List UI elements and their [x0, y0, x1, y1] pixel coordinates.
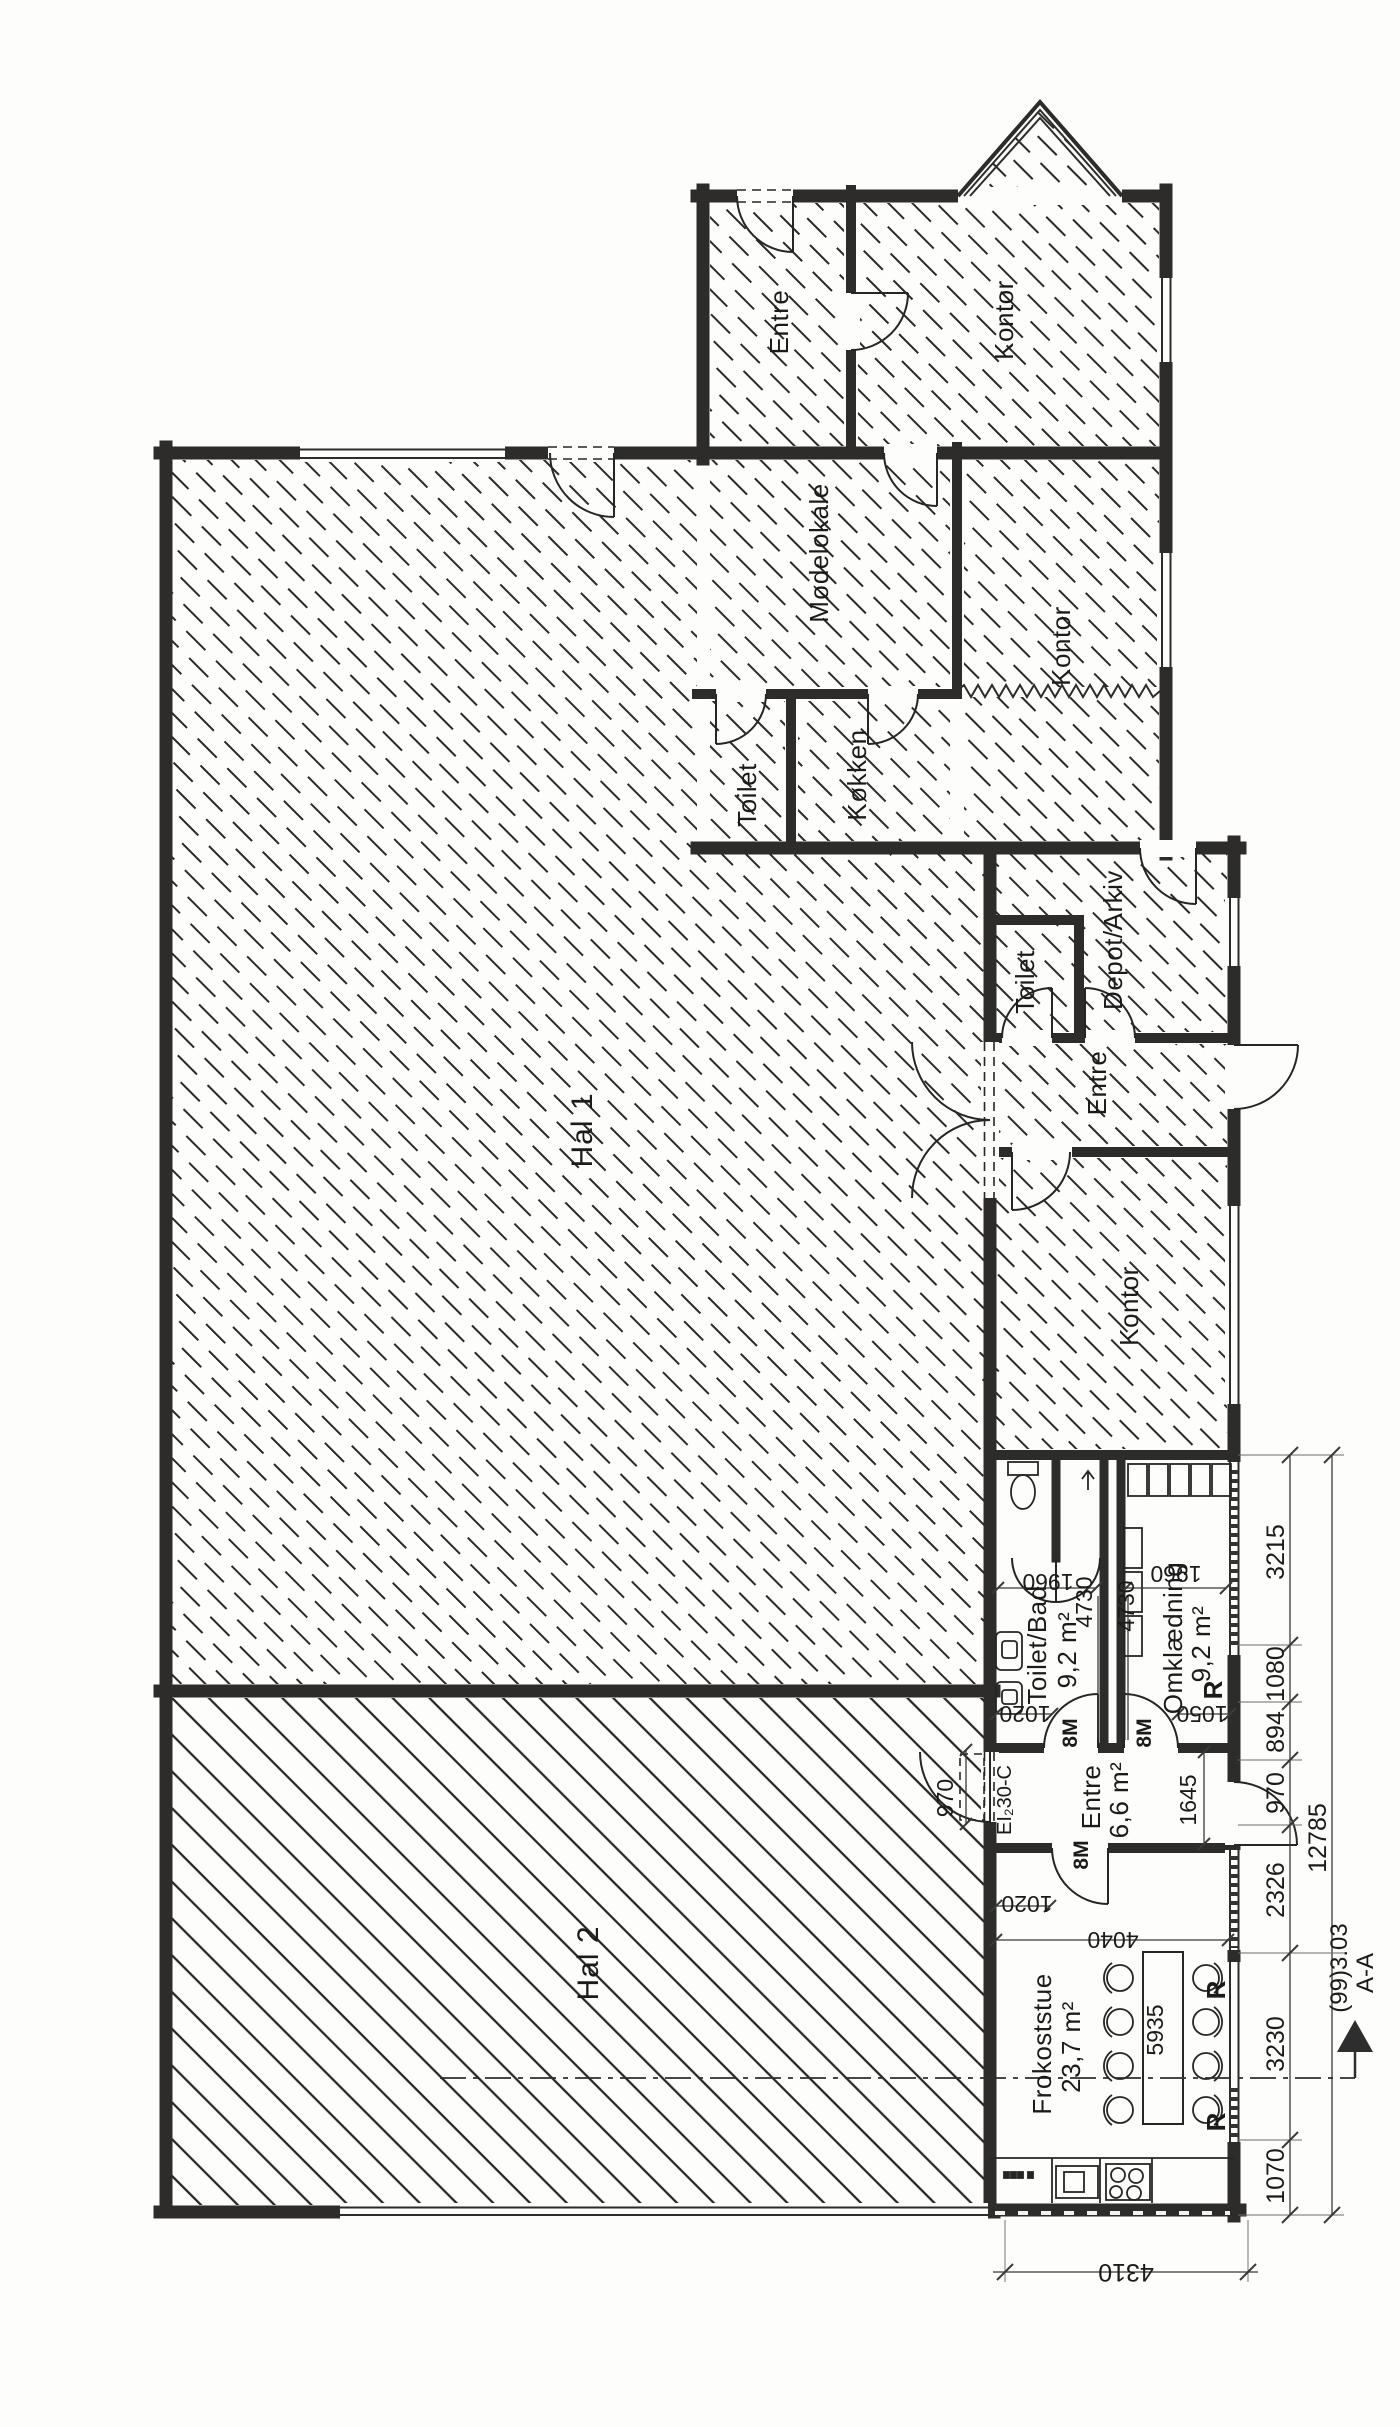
section-ref: (99)3.03 — [1326, 1923, 1353, 2012]
fire-door-rating: EI₂30-C — [994, 1765, 1016, 1835]
room-label-kontor-mid: Kontor — [1046, 606, 1076, 686]
room-label-kokken: Køkken — [842, 729, 872, 820]
room-label-entre-top: Entre — [764, 290, 794, 355]
door-tag-omkl: 8M — [1133, 1718, 1156, 1747]
dim-entre-depth: 1645 — [1175, 1774, 1201, 1825]
room-label-entre-mid: Entre — [1082, 1051, 1112, 1116]
room-area-frokoststue: 23,7 m² — [1056, 2001, 1086, 2093]
dim-hal2-door: 970 — [932, 1779, 958, 1817]
section-cut-name: A-A — [1352, 1953, 1379, 1993]
dim-chain-3215: 3215 — [1262, 1524, 1290, 1580]
dim-duct-right: 4730 — [1113, 1580, 1139, 1631]
dim-omkl-width: 1960 — [1150, 1561, 1201, 1587]
dim-omkl-door: 1050 — [1176, 1701, 1227, 1727]
room-label-entre-south: Entre — [1076, 1765, 1106, 1830]
room-area-entre-south: 6,6 m² — [1104, 1762, 1134, 1839]
radiator-mark-frokost-1: R — [1201, 1980, 1231, 1999]
door-tag-frokost: 8M — [1070, 1840, 1093, 1869]
room-label-toilet-bad: Toilet/Bad — [1022, 1585, 1052, 1704]
dim-table-length: 5935 — [1142, 2004, 1168, 2055]
radiator-mark-frokost-2: R — [1201, 2112, 1231, 2131]
dim-toiletbad-door: 1020 — [999, 1701, 1050, 1727]
dim-bottom-4310: 4310 — [1098, 2258, 1154, 2286]
dim-total-12785: 12785 — [1304, 1803, 1332, 1873]
dim-frokost-width: 4040 — [1087, 1927, 1138, 1953]
dim-chain-894: 894 — [1262, 1711, 1290, 1753]
dim-frokost-door: 1020 — [1001, 1891, 1052, 1917]
dim-chain-1080: 1080 — [1262, 1646, 1290, 1702]
room-label-hal-1: Hal 1 — [566, 1092, 599, 1167]
door-tag-toiletbad: 8M — [1059, 1718, 1082, 1747]
radiator-mark-omkl: R — [1198, 1680, 1228, 1699]
dim-duct-left: 4730 — [1071, 1576, 1097, 1627]
room-label-toilet-mid: Toilet — [1010, 950, 1040, 1014]
room-label-kontor-south: Kontor — [1114, 1266, 1144, 1346]
room-label-toilet-top: Toilet — [732, 763, 762, 827]
dim-chain-3230: 3230 — [1262, 2016, 1290, 2072]
scanned-floor-plan-page: Entre Kontor Mødelokale Kontor Toilet Kø… — [0, 0, 1400, 2427]
dim-chain-1070: 1070 — [1262, 2148, 1290, 2204]
room-label-frokoststue: Frokoststue — [1027, 1973, 1057, 2114]
room-label-depot-arkiv: Depot/Arkiv — [1098, 870, 1128, 1010]
room-label-hal-2: Hal 2 — [572, 1925, 605, 2000]
room-area-omklaedning: 9,2 m² — [1186, 1606, 1216, 1683]
dim-toiletbad-width: 1960 — [1022, 1569, 1073, 1595]
room-label-modelokale: Mødelokale — [804, 483, 834, 622]
dim-chain-970: 970 — [1262, 1772, 1290, 1814]
floor-plan-drawing: Entre Kontor Mødelokale Kontor Toilet Kø… — [0, 0, 1400, 2427]
room-label-kontor-top: Kontor — [989, 280, 1019, 360]
dim-chain-2326: 2326 — [1262, 1862, 1290, 1918]
